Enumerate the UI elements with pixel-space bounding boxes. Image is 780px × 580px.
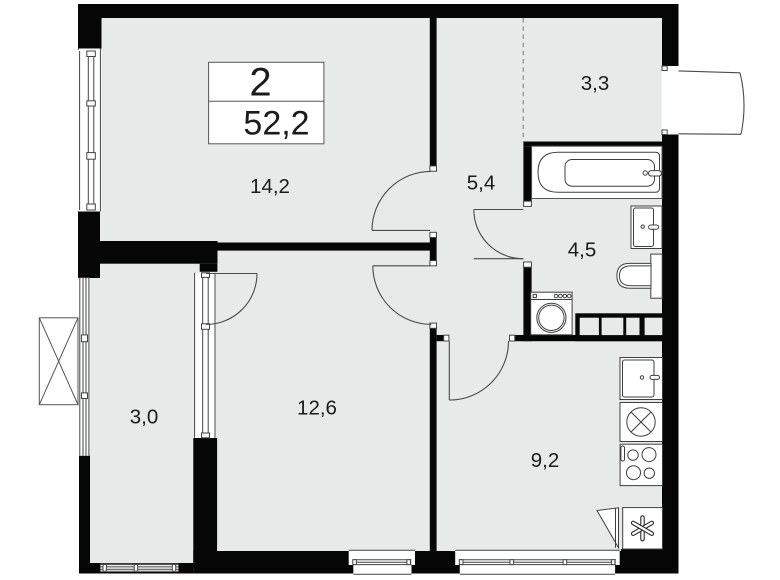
svg-text:12,6: 12,6: [297, 397, 337, 420]
svg-text:2: 2: [249, 61, 271, 105]
svg-text:5,4: 5,4: [467, 172, 496, 195]
svg-text:14,2: 14,2: [250, 175, 290, 198]
svg-text:3,0: 3,0: [130, 406, 159, 429]
svg-text:52,2: 52,2: [243, 104, 309, 142]
svg-text:4,5: 4,5: [568, 239, 597, 262]
svg-text:3,3: 3,3: [581, 72, 610, 95]
svg-text:9,2: 9,2: [531, 449, 560, 472]
